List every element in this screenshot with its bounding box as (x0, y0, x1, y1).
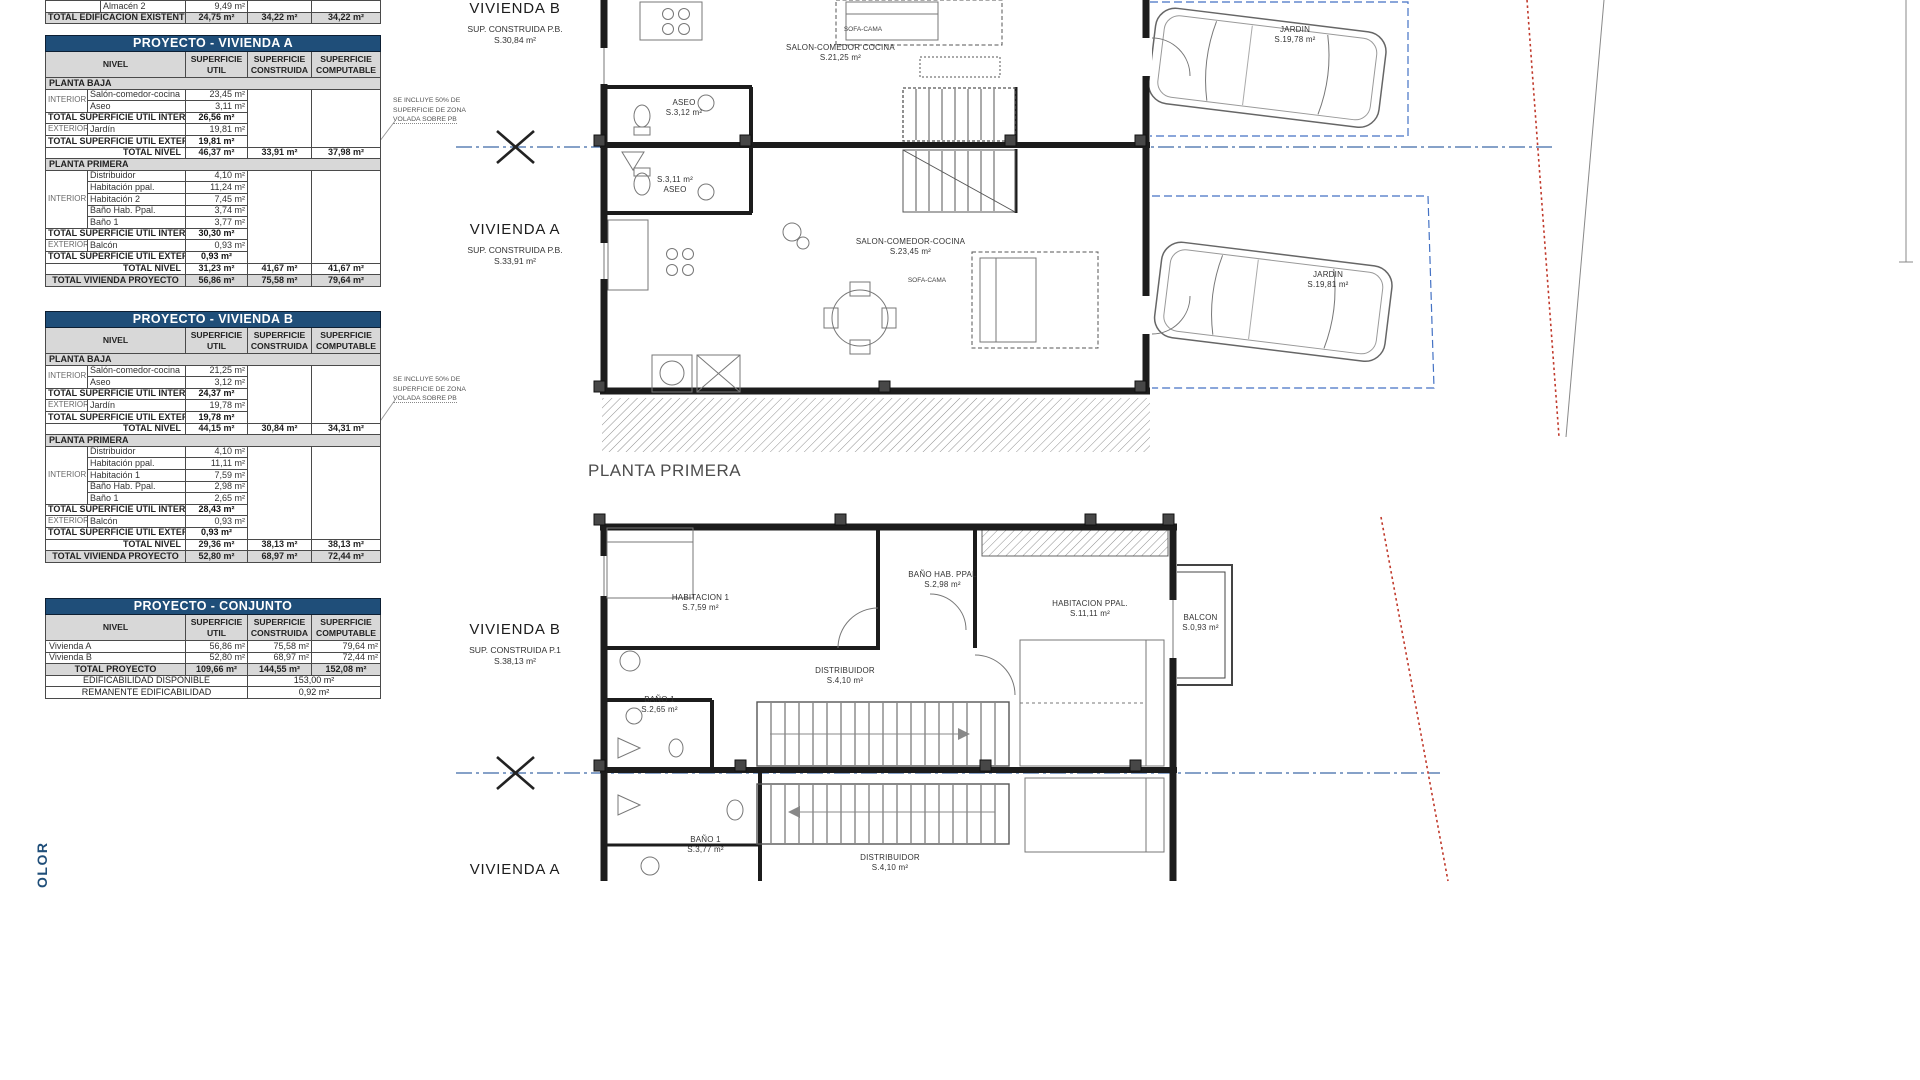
table-cell: TOTAL EDIFICACION EXISTENTE (46, 12, 186, 24)
table-cell: 7,59 m² (186, 469, 248, 481)
shape (735, 760, 746, 771)
table-cell: 68,97 m² (248, 652, 312, 664)
text: BALCON (1183, 613, 1217, 622)
note-vivienda-b: SE INCLUYE 50% DESUPERFICIE DE ZONAVOLAD… (393, 375, 485, 404)
room-label-distribuidor-a: DISTRIBUIDORS.4,10 m² (845, 853, 935, 874)
plan-sheet: { "colors":{"header_blue":"#1f4e79","row… (0, 0, 1920, 1080)
shape (1085, 514, 1096, 525)
section-line (456, 147, 1552, 773)
table-cell (312, 365, 381, 423)
table-cell: 38,13 m² (248, 539, 312, 551)
table-cell: Jardín (88, 124, 186, 136)
room-row: INTERIORSalón-comedor-cocina21,25 m² (46, 365, 381, 377)
vivienda-b-p1-title: VIVIENDA B (440, 621, 590, 638)
text: SUPERFICIE DE ZONA (393, 386, 466, 393)
text: VOLADA SOBRE PB (393, 116, 457, 124)
text: S.2,98 m² (924, 580, 960, 589)
line (1381, 517, 1448, 881)
table-cell: 56,86 m² (186, 641, 248, 653)
total-nivel-row: TOTAL NIVEL31,23 m²41,67 m²41,67 m² (46, 263, 381, 275)
table-row: TOTAL EDIFICACION EXISTENTE24,75 m²34,22… (46, 12, 381, 24)
edificabilidad-row: EDIFICABILIDAD DISPONIBLE153,00 m² (46, 675, 381, 687)
table-cell: 0,93 m² (186, 527, 248, 539)
text: S.21,25 m² (820, 53, 861, 62)
table-cell: Balcón (88, 516, 186, 528)
shape (1005, 135, 1016, 146)
shape (836, 0, 1002, 45)
table-cell: 0,93 m² (186, 251, 248, 263)
room-label-hab-ppal: HABITACION PPAL.S.11,11 m² (1030, 599, 1150, 620)
table-cell: 30,30 m² (186, 228, 248, 240)
table-cell: 41,67 m² (248, 263, 312, 275)
table-cell: TOTAL PROYECTO (46, 664, 186, 676)
vivienda-b-pb-sub: SUP. CONSTRUIDA P.B.S.30,84 m² (428, 24, 602, 46)
table-cell: PLANTA BAJA (46, 354, 381, 366)
shape (618, 795, 640, 815)
table-cell: 72,44 m² (312, 551, 381, 563)
col-header: NIVEL (46, 615, 186, 641)
table-cell: EXTERIOR (46, 400, 88, 412)
table-cell: 19,78 m² (186, 400, 248, 412)
shape (846, 2, 938, 40)
text: SUP. CONSTRUIDA P.B. (467, 24, 562, 34)
room-label-salon-a: SALON-COMEDOR-COCINAS.23,45 m² (838, 237, 983, 258)
line (1527, 0, 1559, 437)
total-vivienda-row: TOTAL VIVIENDA PROYECTO56,86 m²75,58 m²7… (46, 275, 381, 287)
text: S.3,12 m² (666, 108, 702, 117)
col-header: SUPERFICIECONSTRUIDA (248, 328, 312, 354)
table-cell (248, 1, 312, 13)
shape (683, 265, 694, 276)
text: DISTRIBUIDOR (815, 666, 875, 675)
table-cell: 52,80 m² (186, 652, 248, 664)
table-cell: Almacén 2 (101, 1, 186, 13)
shape (1152, 240, 1394, 364)
table-cell: Balcón (88, 240, 186, 252)
project-table-vivienda-a: PROYECTO - VIVIENDA ANIVELSUPERFICIEUTIL… (45, 35, 381, 287)
table-cell: TOTAL SUPERFICIE UTIL EXTERIOR (46, 135, 186, 147)
table-cell: 19,78 m² (186, 411, 248, 423)
vertical-side-text: OLOR (34, 842, 50, 888)
shape (663, 24, 674, 35)
shape (683, 249, 694, 260)
table-cell: 7,45 m² (186, 193, 248, 205)
col-header: SUPERFICIECONSTRUIDA (248, 52, 312, 78)
table-cell (46, 1, 101, 13)
col-header: SUPERFICIEUTIL (186, 328, 248, 354)
table-header-row: NIVELSUPERFICIEUTILSUPERFICIECONSTRUIDAS… (46, 328, 381, 354)
table-title-row: PROYECTO - CONJUNTO (46, 599, 381, 615)
table-cell (248, 170, 312, 263)
total-nivel-row: TOTAL NIVEL29,36 m²38,13 m²38,13 m² (46, 539, 381, 551)
section-row: PLANTA PRIMERA (46, 159, 381, 171)
table-title: PROYECTO - VIVIENDA B (46, 312, 381, 328)
table-cell: 0,93 m² (186, 516, 248, 528)
table-cell: 33,91 m² (248, 147, 312, 159)
table-cell: EXTERIOR (46, 516, 88, 528)
planta-primera-title: PLANTA PRIMERA (588, 461, 741, 481)
shape (1025, 778, 1164, 852)
text: HABITACION PPAL. (1052, 599, 1128, 608)
text: S.0,93 m² (1182, 623, 1218, 632)
shape (640, 2, 702, 40)
shape (835, 514, 846, 525)
table-cell: 4,10 m² (186, 170, 248, 182)
table-cell: TOTAL VIVIENDA PROYECTO (46, 275, 186, 287)
table-cell: 34,31 m² (312, 423, 381, 435)
project-table: PROYECTO - VIVIENDA BNIVELSUPERFICIEUTIL… (45, 311, 381, 563)
text: SUPERFICIE DE ZONA (393, 107, 466, 114)
element: PROYECTO - CONJUNTONIVELSUPERFICIEUTILSU… (46, 599, 381, 699)
table-cell: 3,11 m² (186, 101, 248, 113)
table-cell: INTERIOR (46, 446, 88, 504)
table-cell: 21,25 m² (186, 365, 248, 377)
table-cell: 144,55 m² (248, 664, 312, 676)
shape (1130, 760, 1141, 771)
table-cell: 75,58 m² (248, 275, 312, 287)
element: PROYECTO - VIVIENDA BNIVELSUPERFICIEUTIL… (46, 312, 381, 563)
text: JARDIN (1280, 25, 1310, 34)
table-cell: PLANTA PRIMERA (46, 159, 381, 171)
text: BAÑO HAB. PPAL (908, 570, 976, 579)
table-cell: Aseo (88, 377, 186, 389)
shape (824, 308, 838, 328)
table-title-row: PROYECTO - VIVIENDA A (46, 36, 381, 52)
room-label-bano-ppal: BAÑO HAB. PPALS.2,98 m² (895, 570, 990, 591)
text: S.4,10 m² (827, 676, 863, 685)
table-cell: 0,92 m² (248, 687, 381, 699)
terrain-hatch-band (602, 398, 1150, 452)
shape (920, 57, 1000, 77)
col-header: NIVEL (46, 328, 186, 354)
text: SUP. CONSTRUIDA P.1 (469, 645, 561, 655)
room-label-jardin-a: JARDINS.19,81 m² (1288, 270, 1368, 291)
shape (740, 135, 751, 146)
table-cell: TOTAL SUPERFICIE UTIL INTERIOR (46, 388, 186, 400)
table-cell: 19,81 m² (186, 124, 248, 136)
remanente-row: REMANENTE EDIFICABILIDAD0,92 m² (46, 687, 381, 699)
text: DISTRIBUIDOR (860, 853, 920, 862)
table-title: PROYECTO - CONJUNTO (46, 599, 381, 615)
shape (622, 152, 644, 170)
shape (850, 282, 870, 296)
shape (903, 88, 1015, 141)
table-cell: TOTAL NIVEL (46, 423, 186, 435)
text: SALON-COMEDOR COCINA (786, 43, 895, 52)
room-label-sofa-cama-b: SOFA-CAMA (828, 26, 898, 33)
conjunto-row: Vivienda B52,80 m²68,97 m²72,44 m² (46, 652, 381, 664)
element: Almacén 29,49 m² TOTAL EDIFICACION EXIST… (46, 1, 381, 24)
element: PROYECTO - VIVIENDA ANIVELSUPERFICIEUTIL… (46, 36, 381, 287)
room-label-sofa-cama-a: SOFA-CAMA (892, 277, 962, 284)
table-row: Almacén 29,49 m² (46, 1, 381, 13)
conjunto-row: Vivienda A56,86 m²75,58 m²79,64 m² (46, 641, 381, 653)
shape (641, 857, 659, 875)
text: S.23,45 m² (890, 247, 931, 256)
table-cell: Habitación ppal. (88, 458, 186, 470)
plot-boundary-lines (1566, 0, 1913, 437)
table-cell: 24,37 m² (186, 388, 248, 400)
table-cell: PLANTA PRIMERA (46, 435, 381, 447)
table-cell: TOTAL NIVEL (46, 263, 186, 275)
table-cell (312, 89, 381, 147)
total-nivel-row: TOTAL NIVEL46,37 m²33,91 m²37,98 m² (46, 147, 381, 159)
table-cell: INTERIOR (46, 365, 88, 388)
table-cell (248, 446, 312, 539)
vivienda-a-pb-sub: SUP. CONSTRUIDA P.B.S.33,91 m² (428, 245, 602, 267)
room-label-bano1-b: BAÑO 1S.2,65 m² (622, 695, 697, 716)
wardrobe-hatch (982, 528, 1168, 556)
table-cell: 153,00 m² (248, 675, 381, 687)
table-cell (312, 1, 381, 13)
col-header: SUPERFICIECOMPUTABLE (312, 52, 381, 78)
room-label-habitacion1: HABITACION 1S.7,59 m² (648, 593, 753, 614)
shape (980, 258, 1036, 342)
table-cell: 34,22 m² (312, 12, 381, 24)
text: ASEO (663, 185, 686, 194)
table-cell: Vivienda A (46, 641, 186, 653)
table-cell: 37,98 m² (312, 147, 381, 159)
shape (660, 361, 684, 385)
table-cell: Vivienda B (46, 652, 186, 664)
vivienda-b-p1-sub: SUP. CONSTRUIDA P.1S.38,13 m² (428, 645, 602, 667)
table-cell: TOTAL SUPERFICIE UTIL EXTERIOR (46, 251, 186, 263)
table-cell: 26,56 m² (186, 112, 248, 124)
col-header: SUPERFICIECOMPUTABLE (312, 328, 381, 354)
table-cell: 3,77 m² (186, 217, 248, 229)
table-cell: INTERIOR (46, 89, 88, 112)
text: ASEO (672, 98, 695, 107)
table-cell: Habitación 1 (88, 469, 186, 481)
table-header-row: NIVELSUPERFICIEUTILSUPERFICIECONSTRUIDAS… (46, 615, 381, 641)
table-cell: TOTAL SUPERFICIE UTIL INTERIOR (46, 228, 186, 240)
shape (980, 760, 991, 771)
vivienda-b-pb-title: VIVIENDA B (440, 0, 590, 17)
shape (1163, 514, 1174, 525)
table-cell: Baño Hab. Ppal. (88, 481, 186, 493)
room-row: INTERIORDistribuidor4,10 m² (46, 446, 381, 458)
project-table: PROYECTO - VIVIENDA ANIVELSUPERFICIEUTIL… (45, 35, 381, 287)
shape (838, 608, 878, 648)
shape (882, 308, 896, 328)
table-cell: TOTAL SUPERFICIE UTIL INTERIOR (46, 504, 186, 516)
table-cell: 34,22 m² (248, 12, 312, 24)
col-header: SUPERFICIECOMPUTABLE (312, 615, 381, 641)
note-vivienda-a: SE INCLUYE 50% DESUPERFICIE DE ZONAVOLAD… (393, 96, 485, 125)
text: BAÑO 1 (644, 695, 675, 704)
table-cell: 79,64 m² (312, 641, 381, 653)
table-cell: Distribuidor (88, 170, 186, 182)
shape (594, 381, 605, 392)
shape (797, 237, 809, 249)
table-cell: TOTAL NIVEL (46, 539, 186, 551)
shape (930, 594, 966, 630)
table-header-row: NIVELSUPERFICIEUTILSUPERFICIECONSTRUIDAS… (46, 52, 381, 78)
room-label-aseo-a: S.3,11 m²ASEO (630, 175, 720, 196)
table-cell: 56,86 m² (186, 275, 248, 287)
text: S.3,11 m² (657, 175, 693, 184)
shape (727, 800, 743, 820)
shape (832, 290, 888, 346)
table-cell: TOTAL SUPERFICIE UTIL EXTERIOR (46, 527, 186, 539)
existing-building-table: Almacén 29,49 m² TOTAL EDIFICACION EXIST… (45, 0, 381, 24)
shape (594, 514, 605, 525)
table-cell: INTERIOR (46, 170, 88, 228)
table-title: PROYECTO - VIVIENDA A (46, 36, 381, 52)
table-cell: Baño 1 (88, 493, 186, 505)
table-cell: EXTERIOR (46, 124, 88, 136)
shape (783, 223, 801, 241)
table-cell: 38,13 m² (312, 539, 381, 551)
table-cell: TOTAL SUPERFICIE UTIL INTERIOR (46, 112, 186, 124)
room-label-salon-b: SALON-COMEDOR COCINAS.21,25 m² (768, 43, 913, 64)
table-cell: TOTAL VIVIENDA PROYECTO (46, 551, 186, 563)
table-cell: Salón-comedor-cocina (88, 89, 186, 101)
table-cell: 4,10 m² (186, 446, 248, 458)
table-cell: 75,58 m² (248, 641, 312, 653)
vivienda-a-p1-title: VIVIENDA A (440, 861, 590, 878)
room-row: INTERIORSalón-comedor-cocina23,45 m² (46, 89, 381, 101)
table-cell: 11,11 m² (186, 458, 248, 470)
shape (1135, 135, 1146, 146)
total-proyecto-row: TOTAL PROYECTO109,66 m²144,55 m²152,08 m… (46, 664, 381, 676)
car-icon (1146, 6, 1394, 364)
text: VOLADA SOBRE PB (393, 395, 457, 403)
shape (1140, 38, 1152, 76)
shape (663, 9, 674, 20)
table-cell: 0,93 m² (186, 240, 248, 252)
shape (607, 528, 693, 598)
text: JARDIN (1313, 270, 1343, 279)
table-cell: 28,43 m² (186, 504, 248, 516)
table-cell: 30,84 m² (248, 423, 312, 435)
table-cell: EXTERIOR (46, 240, 88, 252)
table-cell: Aseo (88, 101, 186, 113)
table-cell: 2,98 m² (186, 481, 248, 493)
table-cell (312, 446, 381, 539)
table-cell: EDIFICABILIDAD DISPONIBLE (46, 675, 248, 687)
table-cell: 9,49 m² (186, 1, 248, 13)
table-cell: PLANTA BAJA (46, 78, 381, 90)
table-cell: Habitación 2 (88, 193, 186, 205)
table-cell: Habitación ppal. (88, 182, 186, 194)
shape (620, 651, 640, 671)
shape (850, 340, 870, 354)
shape (958, 728, 970, 740)
text: S.33,91 m² (494, 256, 536, 266)
shape (975, 655, 1015, 695)
table-cell: 52,80 m² (186, 551, 248, 563)
text: S.2,65 m² (641, 705, 677, 714)
total-nivel-row: TOTAL NIVEL44,15 m²30,84 m²34,31 m² (46, 423, 381, 435)
shape (594, 760, 605, 771)
table-cell: Distribuidor (88, 446, 186, 458)
col-header: SUPERFICIECONSTRUIDA (248, 615, 312, 641)
text: S.30,84 m² (494, 35, 536, 45)
table-cell: 2,65 m² (186, 493, 248, 505)
shape (618, 738, 640, 758)
section-row: PLANTA BAJA (46, 354, 381, 366)
shape (1140, 296, 1152, 334)
table-cell: Salón-comedor-cocina (88, 365, 186, 377)
col-header: NIVEL (46, 52, 186, 78)
table-cell: 23,45 m² (186, 89, 248, 101)
table-cell: 152,08 m² (312, 664, 381, 676)
shape (669, 739, 683, 757)
text: HABITACION 1 (672, 593, 729, 602)
text: SE INCLUYE 50% DE (393, 97, 460, 104)
table-cell: Jardín (88, 400, 186, 412)
table-cell (312, 170, 381, 263)
text: SE INCLUYE 50% DE (393, 376, 460, 383)
table-cell (248, 365, 312, 423)
room-label-jardin-b: JARDINS.19,78 m² (1255, 25, 1335, 46)
total-vivienda-row: TOTAL VIVIENDA PROYECTO52,80 m²68,97 m²7… (46, 551, 381, 563)
section-row: PLANTA PRIMERA (46, 435, 381, 447)
table-cell: 46,37 m² (186, 147, 248, 159)
shape (634, 127, 650, 135)
table-cell: TOTAL NIVEL (46, 147, 186, 159)
table-title-row: PROYECTO - VIVIENDA B (46, 312, 381, 328)
line (1566, 0, 1604, 437)
text: SUP. CONSTRUIDA P.B. (467, 245, 562, 255)
table-cell: 11,24 m² (186, 182, 248, 194)
text: S.19,81 m² (1307, 280, 1348, 289)
table-cell: 109,66 m² (186, 664, 248, 676)
text: S.7,59 m² (682, 603, 718, 612)
shape (679, 24, 690, 35)
table-cell: Baño Hab. Ppal. (88, 205, 186, 217)
table-cell: 44,15 m² (186, 423, 248, 435)
room-label-bano1-a: BAÑO 1S.3,77 m² (668, 835, 743, 856)
shape (679, 9, 690, 20)
section-row: PLANTA BAJA (46, 78, 381, 90)
shape (972, 252, 1098, 348)
conjunto-table: PROYECTO - CONJUNTONIVELSUPERFICIEUTILSU… (45, 598, 381, 699)
table-cell: 31,23 m² (186, 263, 248, 275)
table-cell: 29,36 m² (186, 539, 248, 551)
shape (879, 381, 890, 392)
table-cell: 68,97 m² (248, 551, 312, 563)
table-cell: REMANENTE EDIFICABILIDAD (46, 687, 248, 699)
text: S.4,10 m² (872, 863, 908, 872)
table-cell: 24,75 m² (186, 12, 248, 24)
table-cell: TOTAL SUPERFICIE UTIL EXTERIOR (46, 411, 186, 423)
room-label-aseo-b: ASEOS.3,12 m² (648, 98, 720, 119)
table-cell: 72,44 m² (312, 652, 381, 664)
text: S.38,13 m² (494, 656, 536, 666)
text: S.11,11 m² (1070, 609, 1110, 618)
shape (788, 806, 800, 818)
text: S.19,78 m² (1274, 35, 1315, 44)
vivienda-a-pb-title: VIVIENDA A (440, 221, 590, 238)
col-header: SUPERFICIEUTIL (186, 615, 248, 641)
col-header: SUPERFICIEUTIL (186, 52, 248, 78)
shape (608, 220, 648, 290)
room-label-distribuidor-b: DISTRIBUIDORS.4,10 m² (800, 666, 890, 687)
table-cell: 3,12 m² (186, 377, 248, 389)
stairs-planta-baja (903, 88, 1015, 212)
project-table-vivienda-b: PROYECTO - VIVIENDA BNIVELSUPERFICIEUTIL… (45, 311, 381, 563)
shape (594, 135, 605, 146)
table-cell: 79,64 m² (312, 275, 381, 287)
shape (1135, 381, 1146, 392)
project-table-conjunto: PROYECTO - CONJUNTONIVELSUPERFICIEUTILSU… (45, 598, 381, 699)
text: BAÑO 1 (690, 835, 721, 844)
shape (667, 249, 678, 260)
table-cell: Baño 1 (88, 217, 186, 229)
room-label-balcon: BALCONS.0,93 m² (1168, 613, 1233, 634)
